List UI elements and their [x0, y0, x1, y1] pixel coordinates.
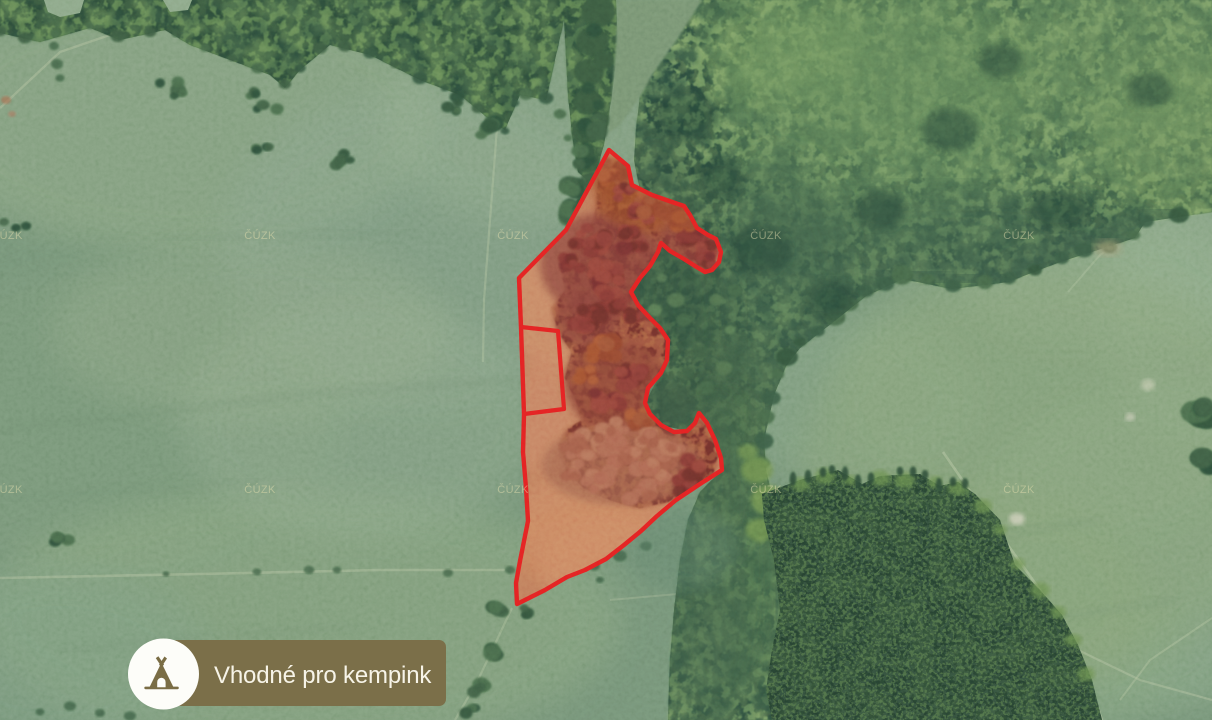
- svg-text:ČÚZK: ČÚZK: [244, 483, 276, 496]
- svg-text:ČÚZK: ČÚZK: [750, 483, 782, 496]
- svg-text:ČÚZK: ČÚZK: [1003, 229, 1035, 242]
- svg-text:Vhodné pro kempink: Vhodné pro kempink: [214, 662, 432, 689]
- svg-text:ČÚZK: ČÚZK: [0, 483, 23, 496]
- svg-text:ČÚZK: ČÚZK: [750, 229, 782, 242]
- svg-text:ČÚZK: ČÚZK: [497, 483, 529, 496]
- svg-text:ČÚZK: ČÚZK: [497, 229, 529, 242]
- svg-text:ČÚZK: ČÚZK: [244, 229, 276, 242]
- svg-text:ČÚZK: ČÚZK: [1003, 483, 1035, 496]
- svg-text:ČÚZK: ČÚZK: [0, 229, 23, 242]
